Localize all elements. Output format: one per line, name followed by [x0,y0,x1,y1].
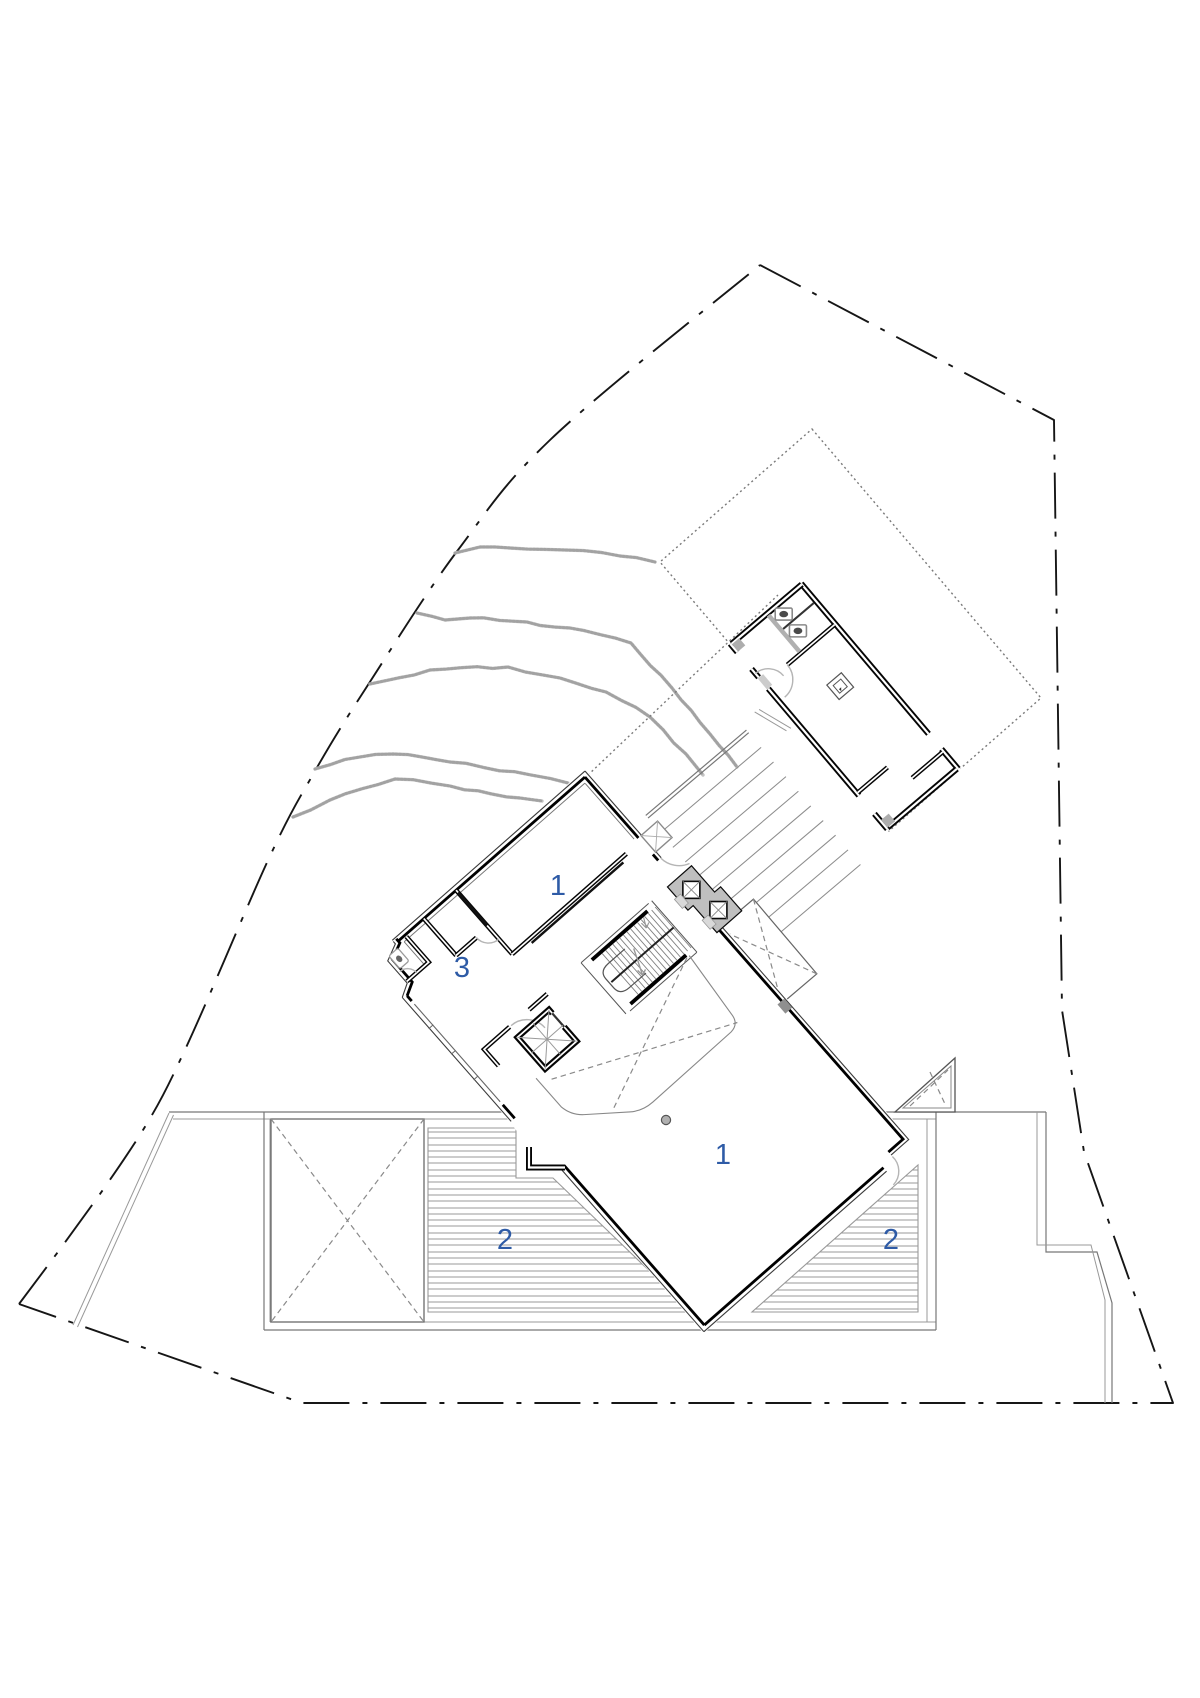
svg-text:1: 1 [550,870,566,902]
svg-text:2: 2 [883,1224,899,1256]
svg-text:3: 3 [454,952,470,984]
svg-text:2: 2 [497,1224,513,1256]
svg-text:1: 1 [715,1139,731,1171]
